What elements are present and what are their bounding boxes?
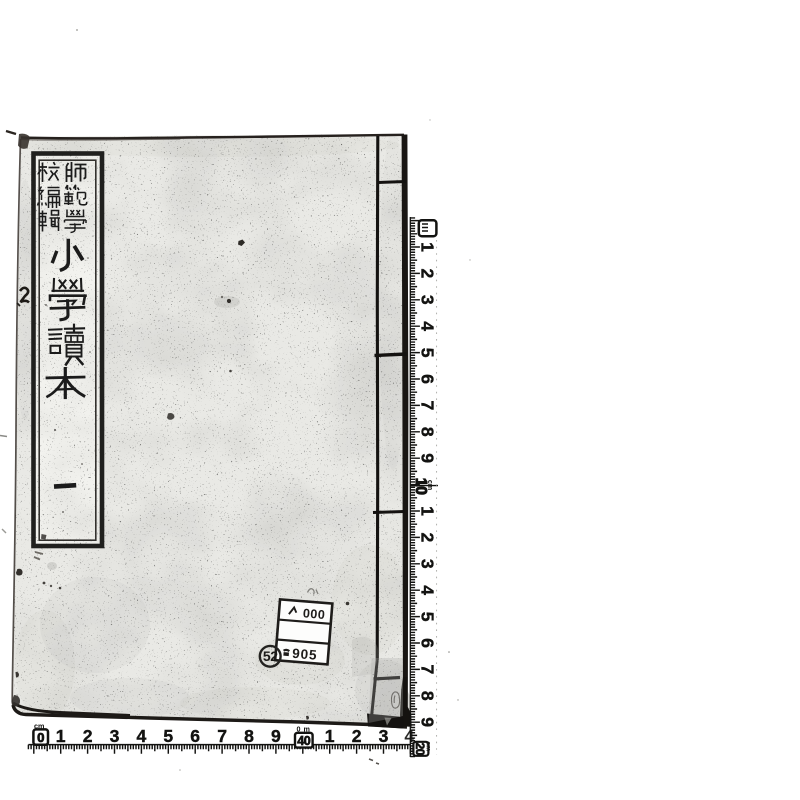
- svg-text:6: 6: [190, 726, 200, 746]
- svg-text:8: 8: [418, 427, 438, 437]
- svg-text:4: 4: [418, 321, 438, 331]
- svg-text:4: 4: [418, 585, 438, 595]
- svg-text:5: 5: [418, 348, 438, 358]
- svg-text:9: 9: [271, 726, 281, 746]
- svg-text:6: 6: [418, 638, 438, 648]
- svg-text:7: 7: [418, 401, 438, 411]
- svg-text:3: 3: [418, 559, 438, 569]
- svg-text:cm: cm: [426, 480, 435, 490]
- svg-text:5: 5: [163, 726, 173, 746]
- svg-text:1: 1: [418, 506, 438, 516]
- svg-text:1: 1: [325, 726, 335, 746]
- svg-text:3: 3: [110, 726, 120, 746]
- svg-text:000: 000: [302, 606, 325, 622]
- svg-text:3: 3: [418, 295, 438, 305]
- svg-text:cm: cm: [34, 722, 44, 731]
- svg-text:cm: cm: [424, 741, 431, 751]
- svg-text:8: 8: [244, 726, 254, 746]
- svg-text:0: 0: [297, 725, 301, 734]
- svg-text:0: 0: [37, 730, 44, 745]
- svg-text:1: 1: [418, 242, 438, 252]
- svg-text:905: 905: [292, 646, 318, 663]
- svg-text:40: 40: [297, 734, 311, 748]
- svg-text:2: 2: [83, 726, 93, 746]
- svg-text:3: 3: [379, 726, 389, 746]
- svg-text:2: 2: [418, 269, 438, 279]
- svg-text:7: 7: [217, 726, 227, 746]
- svg-text:9: 9: [418, 717, 438, 727]
- svg-text:52: 52: [263, 648, 278, 664]
- svg-text:9: 9: [418, 453, 438, 463]
- svg-text:2: 2: [418, 533, 438, 543]
- svg-text:6: 6: [418, 374, 438, 384]
- svg-text:2: 2: [352, 726, 362, 746]
- svg-text:7: 7: [418, 665, 438, 675]
- svg-text:m: m: [304, 725, 310, 734]
- svg-text:5: 5: [418, 612, 438, 622]
- svg-text:4: 4: [137, 726, 147, 746]
- svg-text:8: 8: [418, 691, 438, 701]
- svg-text:1: 1: [56, 726, 66, 746]
